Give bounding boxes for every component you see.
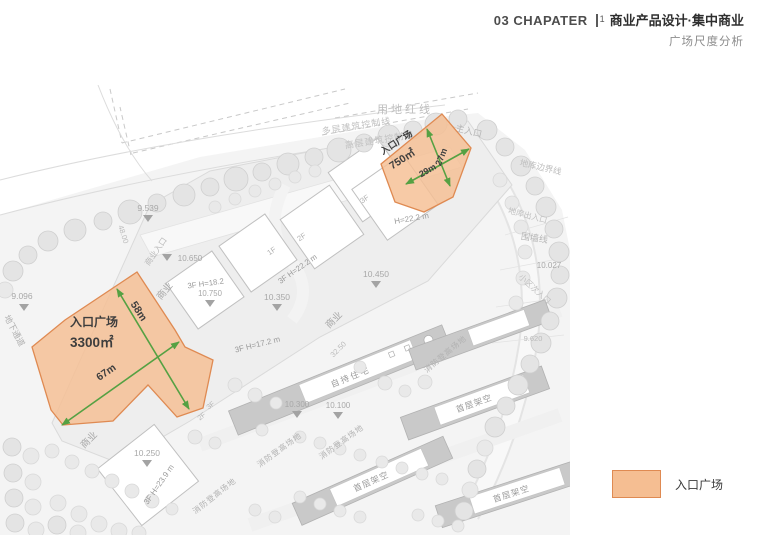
tree-icon [25, 474, 41, 490]
tree-icon [173, 184, 195, 206]
tree-icon [518, 245, 532, 259]
tree-icon [45, 444, 59, 458]
tree-icon [432, 515, 444, 527]
tree-icon [105, 474, 119, 488]
label-elevation-10250: 10.250 [134, 448, 160, 458]
label-elevation-9096: 9.096 [11, 291, 33, 301]
tree-icon [48, 516, 66, 534]
tree-icon [125, 484, 139, 498]
tree-icon [65, 455, 79, 469]
site-plan-map: 自持住宅 首层架空 首层架空 首层架空 用地红线 多层建筑控制线 高层建筑控制线… [0, 85, 570, 535]
tree-icon [485, 417, 505, 437]
tree-icon [38, 231, 58, 251]
tree-icon [497, 397, 515, 415]
tree-icon [3, 261, 23, 281]
tree-icon [23, 448, 39, 464]
tree-icon [541, 312, 559, 330]
label-elevation-10100: 10.100 [326, 401, 351, 410]
tree-icon [354, 361, 366, 373]
label-elevation-10027: 10.027 [537, 261, 562, 270]
header-title-row: 03 CHAPATER1商业产品设计·集中商业 [494, 10, 744, 30]
section-divider [596, 14, 598, 27]
tree-icon [28, 522, 44, 535]
tree-icon [71, 506, 87, 522]
tree-icon [418, 375, 432, 389]
tree-icon [94, 212, 112, 230]
slide-header: 03 CHAPATER1商业产品设计·集中商业 广场尺度分析 [494, 10, 744, 49]
tree-icon [496, 138, 514, 156]
tree-icon [399, 385, 411, 397]
tree-icon [521, 355, 539, 373]
tree-icon [314, 437, 326, 449]
tree-icon [249, 185, 261, 197]
tree-icon [253, 163, 271, 181]
legend: 入口广场 [612, 470, 723, 498]
plaza-large-area: 3300㎡ [70, 334, 114, 350]
tree-icon [508, 375, 528, 395]
section-number: 1 [600, 14, 605, 24]
tree-icon [5, 489, 23, 507]
tree-icon [314, 498, 326, 510]
label-elevation-10650: 10.650 [178, 254, 203, 263]
tree-icon [468, 460, 486, 478]
tree-icon [64, 219, 86, 241]
tree-icon [289, 171, 301, 183]
tree-icon [249, 504, 261, 516]
tree-icon [334, 505, 346, 517]
tree-icon [416, 468, 428, 480]
tree-icon [376, 456, 388, 468]
tree-icon [50, 495, 66, 511]
tree-icon [493, 173, 507, 187]
tree-icon [25, 499, 41, 515]
tree-icon [396, 462, 408, 474]
label-elevation-10750: 10.750 [198, 289, 223, 298]
label-elevation-9620: 9.620 [524, 334, 543, 343]
plaza-large-name: 入口广场 [70, 314, 118, 329]
header-subtitle: 广场尺度分析 [494, 33, 744, 49]
tree-icon [378, 376, 392, 390]
tree-icon [209, 437, 221, 449]
tree-icon [455, 502, 473, 520]
header-title: 商业产品设计·集中商业 [610, 13, 744, 28]
tree-icon [526, 177, 544, 195]
tree-icon [549, 242, 569, 262]
label-elevation-10300: 10.300 [285, 400, 310, 409]
tree-icon [305, 148, 323, 166]
tree-icon [309, 165, 321, 177]
tree-icon [509, 296, 523, 310]
tree-icon [229, 193, 241, 205]
tree-icon [4, 464, 22, 482]
tree-icon [209, 201, 221, 213]
legend-swatch-entrance-plaza [612, 470, 661, 498]
slide-page: { "header": { "chapter": "03 CHAPATER", … [0, 0, 760, 535]
label-site-red-line: 用地红线 [377, 102, 433, 116]
tree-icon [111, 523, 127, 535]
chapter-label: 03 CHAPATER [494, 13, 588, 28]
label-elevation-10450: 10.450 [363, 269, 389, 279]
tree-icon [228, 378, 242, 392]
tree-icon [477, 440, 493, 456]
tree-icon [462, 482, 478, 498]
tree-icon [436, 473, 448, 485]
tree-icon [294, 491, 306, 503]
legend-label: 入口广场 [675, 476, 723, 493]
tree-icon [91, 516, 107, 532]
tree-icon [166, 503, 178, 515]
tree-icon [270, 397, 282, 409]
label-elevation-10350: 10.350 [264, 292, 290, 302]
label-elevation-9539: 9.539 [137, 203, 159, 213]
tree-icon [269, 178, 281, 190]
tree-icon [188, 430, 202, 444]
tree-icon [224, 167, 248, 191]
tree-icon [269, 511, 281, 523]
tree-icon [354, 511, 366, 523]
tree-icon [201, 178, 219, 196]
tree-icon [6, 514, 24, 532]
tree-icon [354, 449, 366, 461]
tree-icon [256, 424, 268, 436]
tree-icon [452, 520, 464, 532]
tree-icon [248, 388, 262, 402]
tree-icon [19, 246, 37, 264]
tree-icon [85, 464, 99, 478]
tree-icon [3, 438, 21, 456]
tree-icon [412, 509, 424, 521]
